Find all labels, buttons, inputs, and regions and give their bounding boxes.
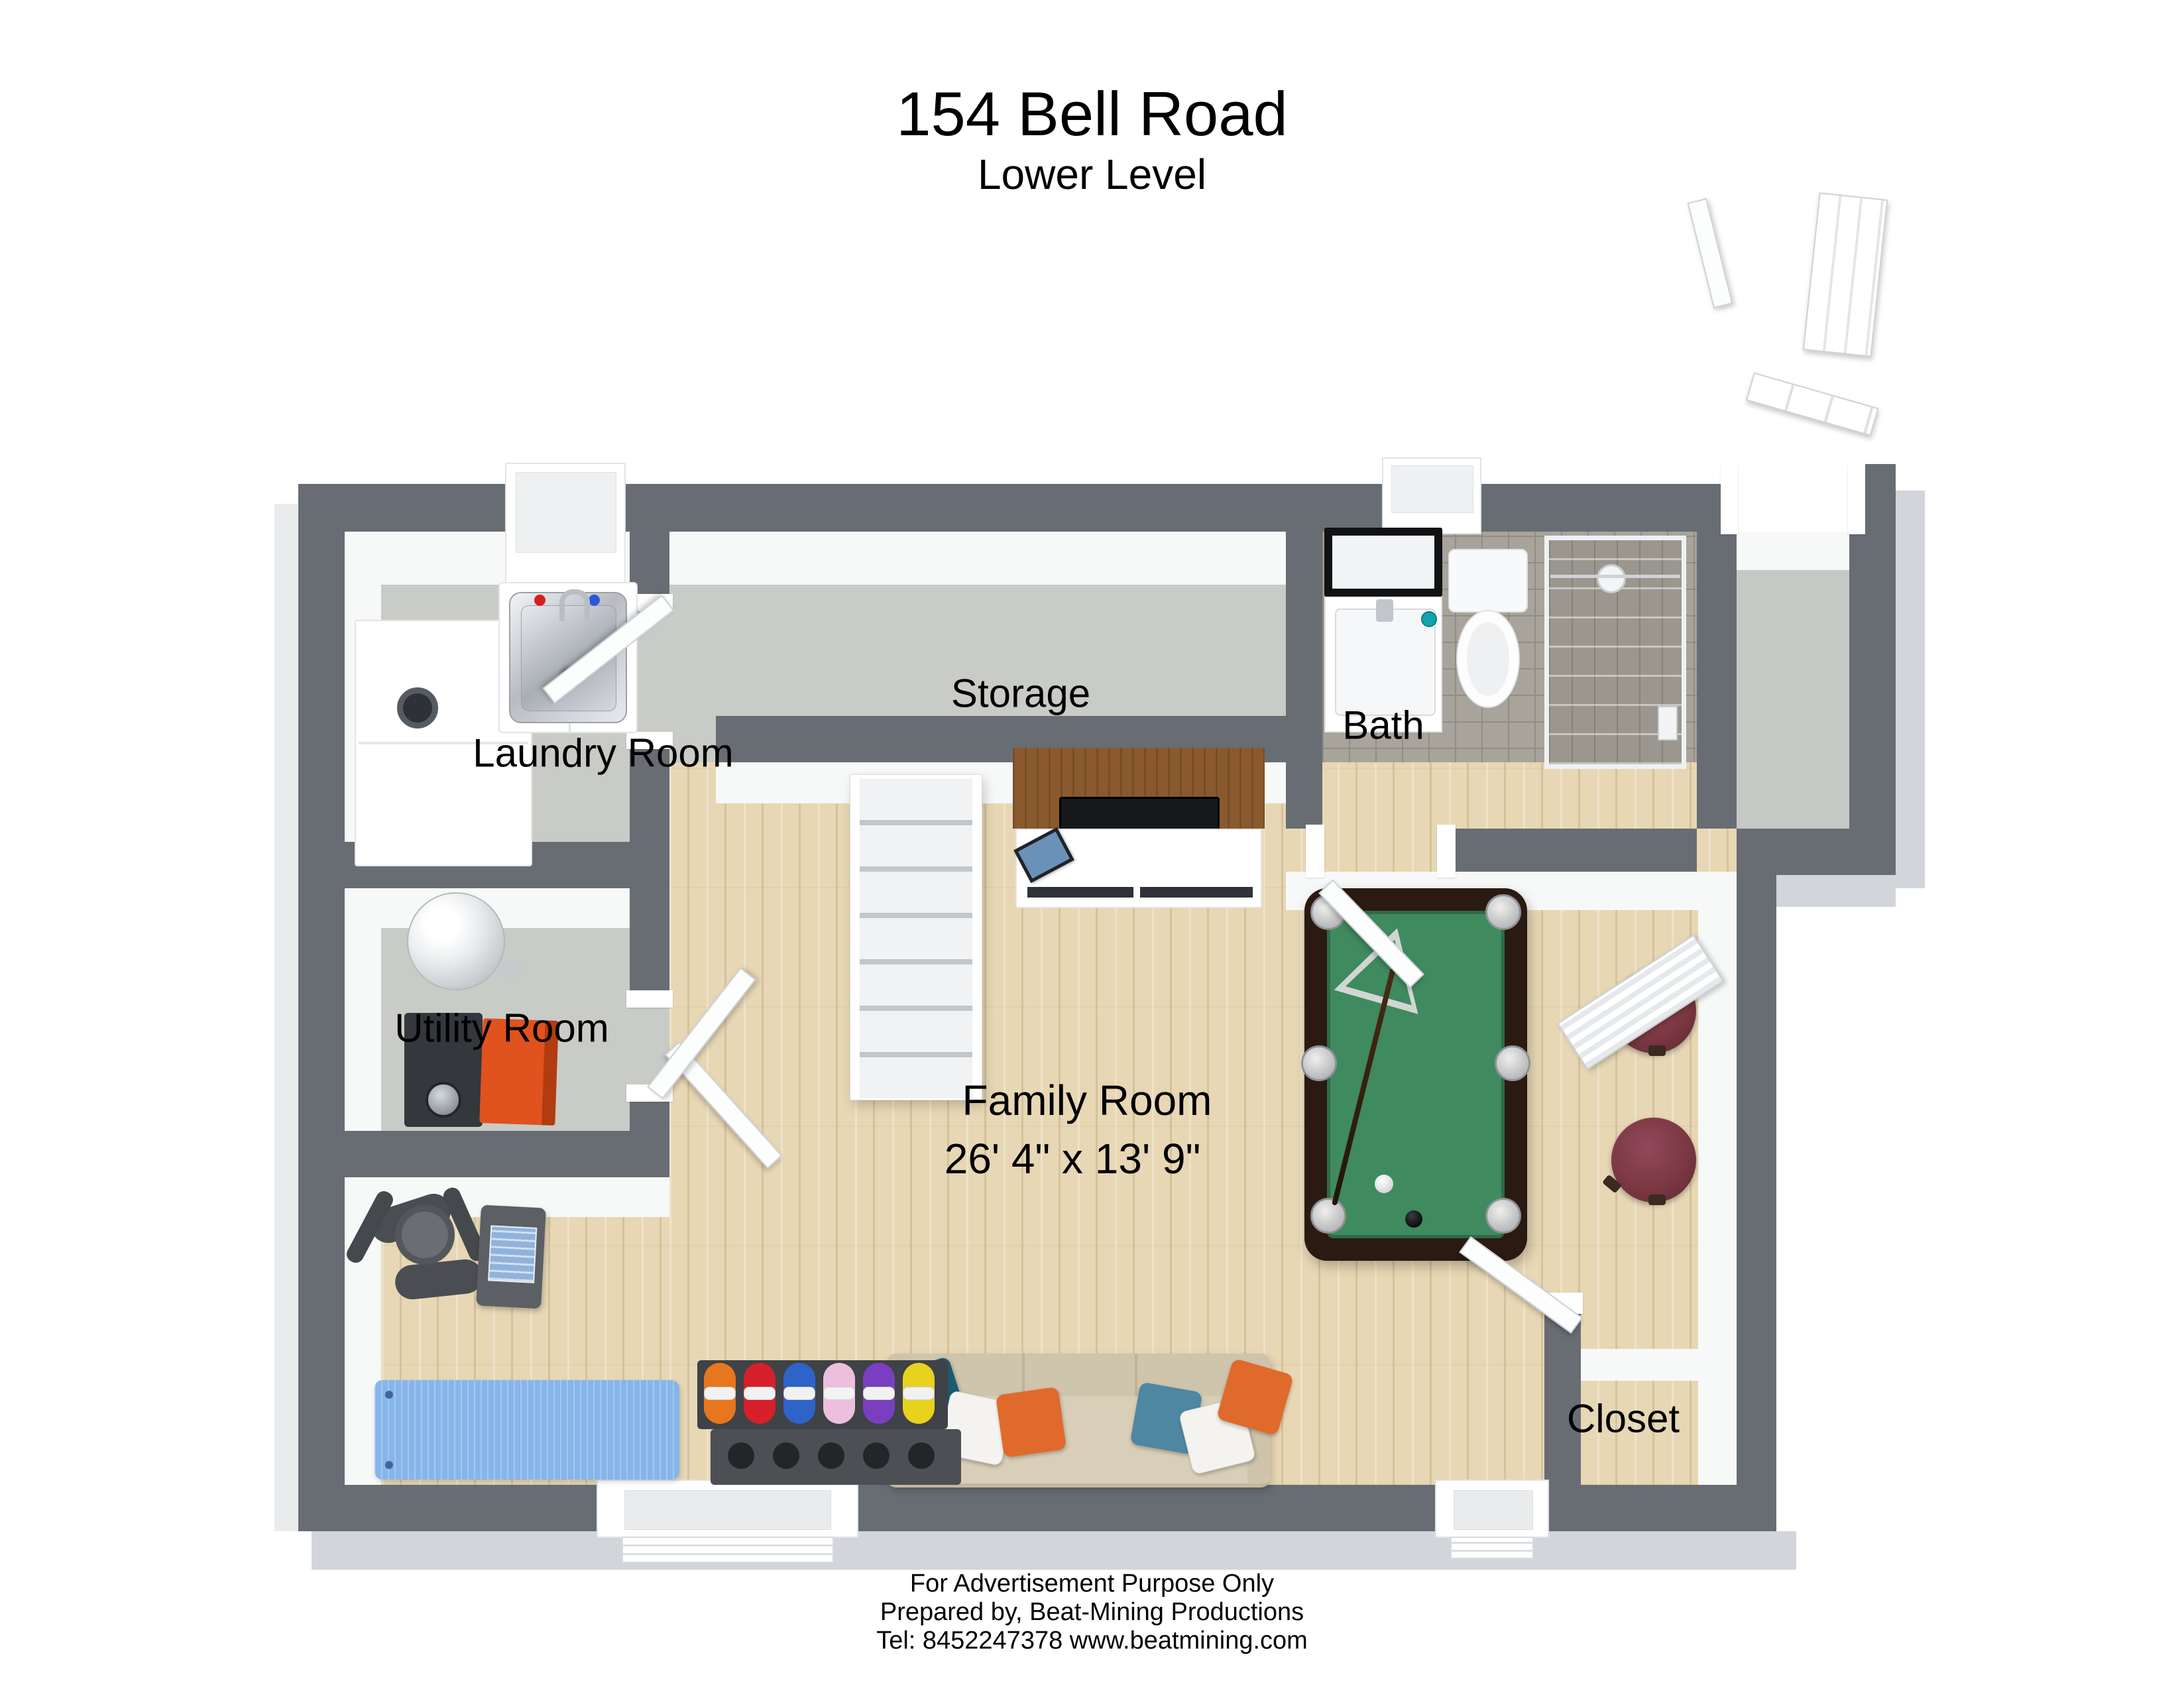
tv-cabinet-vent-right [1140, 887, 1253, 898]
tv-cabinet-vent-left [1027, 887, 1133, 898]
family-room-label: Family Room [962, 1076, 1212, 1125]
wall-utility-south [298, 1131, 669, 1177]
storage-north-face [669, 532, 1286, 585]
shower-bar-icon [1550, 575, 1680, 578]
yoga-mat [374, 1380, 679, 1480]
family-room-dimensions: 26' 4" x 13' 9" [945, 1134, 1201, 1183]
south-window-left [597, 1480, 858, 1538]
bath-window-glass [1391, 465, 1473, 513]
mat-eyelet-icon [385, 1391, 393, 1399]
vanity-faucet-icon [1376, 599, 1393, 622]
laundry-room-label: Laundry Room [473, 730, 734, 776]
toilet-tank [1448, 549, 1528, 612]
stair-tread [860, 779, 972, 825]
page-title: 154 Bell Road [0, 78, 2184, 150]
footer-disclaimer: For Advertisement Purpose Only [0, 1570, 2184, 1598]
dumbbell-black [773, 1442, 799, 1469]
sofa-back [909, 1354, 1247, 1396]
wall-bath-west [1286, 532, 1322, 829]
cue-ball [1375, 1175, 1393, 1193]
page-subtitle: Lower Level [0, 150, 2184, 199]
utility-room-label: Utility Room [394, 1006, 608, 1051]
dumbbell-black [863, 1442, 890, 1469]
jamb-exterior-door-right [1848, 464, 1865, 534]
elliptical-console [476, 1205, 546, 1309]
wall-bath-east [1697, 532, 1737, 829]
stair-tread [860, 1011, 972, 1057]
jamb-exterior-door-left [1721, 464, 1738, 534]
footer-prepared-by: Prepared by, Beat-Mining Productions [0, 1598, 2184, 1627]
shower [1544, 536, 1686, 769]
dumbbell-handle [863, 1387, 895, 1400]
pool-pocket [1310, 1198, 1346, 1234]
pool-pocket [1301, 1045, 1337, 1081]
pillow-orange [996, 1387, 1066, 1458]
building-base-west [274, 504, 298, 1531]
pool-pocket [1495, 1045, 1530, 1081]
south-window-right-sill [1450, 1537, 1534, 1559]
mat-eyelet-icon [385, 1461, 393, 1469]
floorplan-page: 154 Bell Road Lower Level [0, 0, 2184, 1691]
shower-control-icon [1658, 706, 1678, 740]
building-base-east [1896, 491, 1925, 888]
south-window-right-glass [1454, 1490, 1533, 1530]
closet-header-face [1581, 1349, 1737, 1381]
stool-leg-icon [1648, 1045, 1666, 1056]
bath-label: Bath [1342, 703, 1424, 748]
wall-west [298, 484, 345, 1531]
exterior-door-leaf-open [1803, 192, 1888, 357]
pool-pocket [1485, 894, 1521, 930]
south-window-left-glass [624, 1490, 831, 1530]
south-window-left-sill [622, 1537, 834, 1563]
stair-tread [860, 964, 972, 1011]
elliptical-flywheel [395, 1205, 455, 1265]
wall-utility-east-upper [630, 888, 669, 1008]
faucet-hot-icon [534, 595, 546, 606]
closet-label: Closet [1567, 1396, 1680, 1442]
jamb-utility-door-top [626, 990, 673, 1008]
shower-head-icon [1597, 564, 1626, 593]
footer-contact: Tel: 8452247378 www.beatmining.com [0, 1627, 2184, 1655]
pool-pocket [1485, 1198, 1521, 1234]
building-base-south [312, 1531, 1796, 1570]
vanity-basin [1335, 609, 1436, 716]
sofa-cushion-line [1022, 1354, 1025, 1396]
exterior-door-sliver [1688, 198, 1733, 308]
dumbbell-orange [704, 1363, 736, 1424]
storage-label: Storage [951, 671, 1090, 717]
dumbbell-handle [744, 1387, 776, 1400]
wall-bath-south [1442, 829, 1697, 872]
toilet-seat [1467, 622, 1509, 696]
stair-tread [860, 825, 972, 872]
bath-cup-icon [1421, 611, 1437, 627]
dumbbell-black [728, 1442, 754, 1469]
building-base-bump [1756, 875, 1896, 907]
corridor-north-face [1737, 532, 1849, 570]
pool-felt [1327, 911, 1505, 1238]
bar-stool [1611, 1118, 1696, 1202]
faucet-icon [559, 589, 590, 621]
stair-tread [860, 1057, 972, 1098]
dumbbell-pink [823, 1363, 855, 1424]
eight-ball [1405, 1210, 1422, 1228]
staircase [850, 774, 982, 1100]
dumbbell-handle [704, 1387, 736, 1400]
washer-door-icon [397, 687, 438, 729]
jamb-bath-door-left [1306, 825, 1324, 878]
dumbbell-purple [863, 1363, 895, 1424]
dumbbell-yellow [903, 1363, 935, 1424]
wall-south [298, 1485, 1776, 1531]
exterior-door-leaf [1746, 373, 1879, 436]
stair-tread [860, 918, 972, 964]
furnace-vent-icon [426, 1082, 461, 1118]
bath-window [1382, 457, 1481, 534]
dumbbell-handle [823, 1387, 855, 1400]
stool-leg-icon [1648, 1195, 1666, 1205]
dumbbell-handle [903, 1387, 935, 1400]
jamb-bath-door-right [1437, 825, 1456, 878]
corridor-floor [1737, 532, 1849, 829]
vanity-mirror-glass [1332, 536, 1434, 589]
dumbbell-red [744, 1363, 776, 1424]
faucet-cold-icon [589, 595, 600, 606]
stair-tread [860, 872, 972, 918]
south-window-right [1435, 1480, 1549, 1538]
laundry-sink-window-glass [516, 472, 616, 553]
laundry-sink-window [505, 463, 626, 587]
sofa-cushion-line [1135, 1354, 1137, 1396]
dumbbell-handle [783, 1387, 815, 1400]
dumbbell-blue [783, 1363, 815, 1424]
elliptical-screen-icon [488, 1225, 537, 1283]
pool-table [1304, 888, 1527, 1261]
water-heater [407, 892, 505, 990]
toilet-bowl [1456, 610, 1520, 708]
wall-east-family [1737, 829, 1776, 1531]
dumbbell-black [908, 1442, 935, 1469]
dumbbell-black [818, 1442, 844, 1469]
vanity-mirror [1324, 528, 1442, 597]
